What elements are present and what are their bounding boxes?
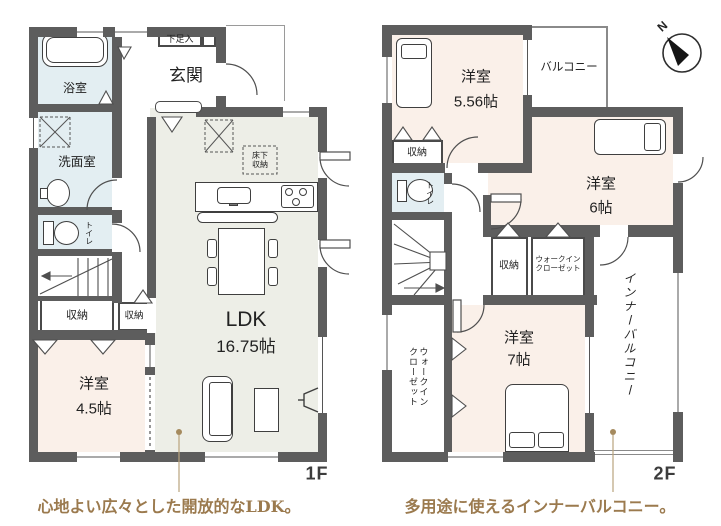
label-washroom: 洗面室 xyxy=(58,155,96,169)
dining-chair-3 xyxy=(268,239,278,258)
door-opening xyxy=(445,163,478,173)
door-opening xyxy=(112,178,122,210)
sofa-seat xyxy=(209,382,232,436)
label-bedroom45-name: 洋室 xyxy=(79,375,109,392)
wall xyxy=(382,295,597,305)
floorplan-canvas: 下足入 玄関 浴室 洗面室 トイレ 収納 収納 床下 収納 LDK 16.75帖… xyxy=(0,0,721,526)
dining-table xyxy=(218,228,265,295)
bed-7-pillow-left xyxy=(509,432,535,448)
inner-balcony-edge xyxy=(594,450,674,455)
wall xyxy=(38,249,112,256)
wall xyxy=(38,296,115,301)
label-bedroom7-size: 7帖 xyxy=(507,351,530,368)
wic-small-line2: クローゼット xyxy=(536,264,581,273)
wall xyxy=(147,117,156,298)
label-bathroom: 浴室 xyxy=(63,82,87,96)
door-opening xyxy=(318,152,327,178)
window xyxy=(77,27,103,37)
dining-chair-4 xyxy=(268,267,278,286)
stove-burner-2 xyxy=(299,188,307,196)
floor-label-2f: 2F xyxy=(653,464,676,485)
label-bedroom7-name: 洋室 xyxy=(504,329,534,346)
label-bedroom6-size: 6帖 xyxy=(589,199,612,216)
washbasin-faucet xyxy=(40,188,48,199)
label-entrance: 玄関 xyxy=(169,66,203,86)
bed-6-pillow xyxy=(644,123,661,151)
wall xyxy=(523,107,683,117)
label-storage-1f-a: 収納 xyxy=(66,310,88,323)
wall xyxy=(29,27,38,462)
window xyxy=(77,452,120,462)
bed-556-pillow xyxy=(401,44,427,59)
door-opening xyxy=(318,240,327,267)
caption-inner-balcony: 多用途に使えるインナーバルコニー。 xyxy=(405,493,676,517)
label-bedroom45-size: 4.5帖 xyxy=(76,400,112,417)
door-opening xyxy=(600,225,628,237)
window xyxy=(29,118,38,148)
dining-chair-2 xyxy=(207,267,217,286)
window xyxy=(585,337,594,413)
kitchen-sink xyxy=(217,187,251,204)
caption-ldk: 心地よい広々とした開放的なLDK。 xyxy=(37,493,300,517)
bathtub-inner xyxy=(46,37,104,63)
inner-balcony-door-arc xyxy=(600,237,628,265)
compass-north-label: N xyxy=(655,19,671,35)
window xyxy=(382,57,392,103)
window xyxy=(673,273,683,412)
label-underfloor-storage: 床下 収納 xyxy=(252,151,268,169)
floor-label-1f: 1F xyxy=(305,464,328,485)
label-wic-large: ウォークイン クローゼット xyxy=(408,347,429,407)
wall xyxy=(444,305,452,452)
stairs-1f xyxy=(40,258,112,296)
wic-large-col2: クローゼット xyxy=(408,347,418,407)
window xyxy=(283,107,309,117)
dining-chair-1 xyxy=(207,239,217,258)
coffee-table xyxy=(254,388,279,432)
wall xyxy=(29,330,155,340)
bedroom45-floor xyxy=(30,332,152,456)
kitchen-faucet xyxy=(229,203,238,206)
wall xyxy=(382,212,444,220)
kitchen-front-counter xyxy=(197,212,278,223)
wall xyxy=(382,25,532,35)
window xyxy=(318,337,327,413)
stove-burner-3 xyxy=(292,198,300,206)
label-storage-2f: 収納 xyxy=(499,260,519,272)
label-inner-balcony: インナーバルコニー xyxy=(621,272,635,398)
label-storage-1f-b: 収納 xyxy=(124,312,143,323)
wall xyxy=(38,207,112,215)
label-toilet-1f: トイレ xyxy=(84,221,93,245)
door-opening xyxy=(444,184,452,212)
window xyxy=(448,452,503,462)
entrance-step xyxy=(155,101,202,113)
wall xyxy=(38,104,112,112)
underfloor-line2: 収納 xyxy=(252,160,268,169)
toilet1f-tank xyxy=(43,221,54,245)
toilet1f-bowl xyxy=(54,221,79,245)
underfloor-line1: 床下 xyxy=(252,151,268,160)
label-bedroom556-size: 5.56帖 xyxy=(454,93,498,110)
door-opening xyxy=(452,295,483,305)
label-ldk-name: LDK xyxy=(226,308,267,332)
toilet2f-door-arc xyxy=(452,184,480,212)
wall xyxy=(29,452,327,462)
wall xyxy=(112,37,122,303)
washbasin-sink xyxy=(46,179,70,207)
window xyxy=(145,345,155,367)
label-toilet-2f: トイレ xyxy=(425,181,434,205)
passage-opening xyxy=(147,298,156,333)
compass-icon xyxy=(663,34,701,72)
door-opening xyxy=(673,154,683,183)
stove-burner-1 xyxy=(285,188,293,196)
bed-7-pillow-right xyxy=(538,432,564,448)
label-balcony: バルコニー xyxy=(540,61,597,74)
window xyxy=(115,27,147,37)
window xyxy=(205,452,278,462)
wall xyxy=(483,225,683,237)
toilet2f-tank xyxy=(397,180,407,202)
stairs-2f xyxy=(394,224,446,295)
porch-outline xyxy=(226,25,285,101)
sliding-door-opening xyxy=(145,375,155,450)
label-wic-small: ウォークイン クローゼット xyxy=(536,255,581,272)
wic-large-col1: ウォークイン xyxy=(418,347,428,407)
window xyxy=(382,315,392,370)
label-shoe-storage: 下足入 xyxy=(166,34,193,44)
label-bedroom556-name: 洋室 xyxy=(461,68,491,85)
door-opening xyxy=(112,223,122,252)
label-bedroom6-name: 洋室 xyxy=(586,175,616,192)
door-opening xyxy=(216,63,226,96)
label-closet-556: 収納 xyxy=(407,147,427,159)
window xyxy=(523,40,532,95)
label-ldk-size: 16.75帖 xyxy=(216,337,276,357)
